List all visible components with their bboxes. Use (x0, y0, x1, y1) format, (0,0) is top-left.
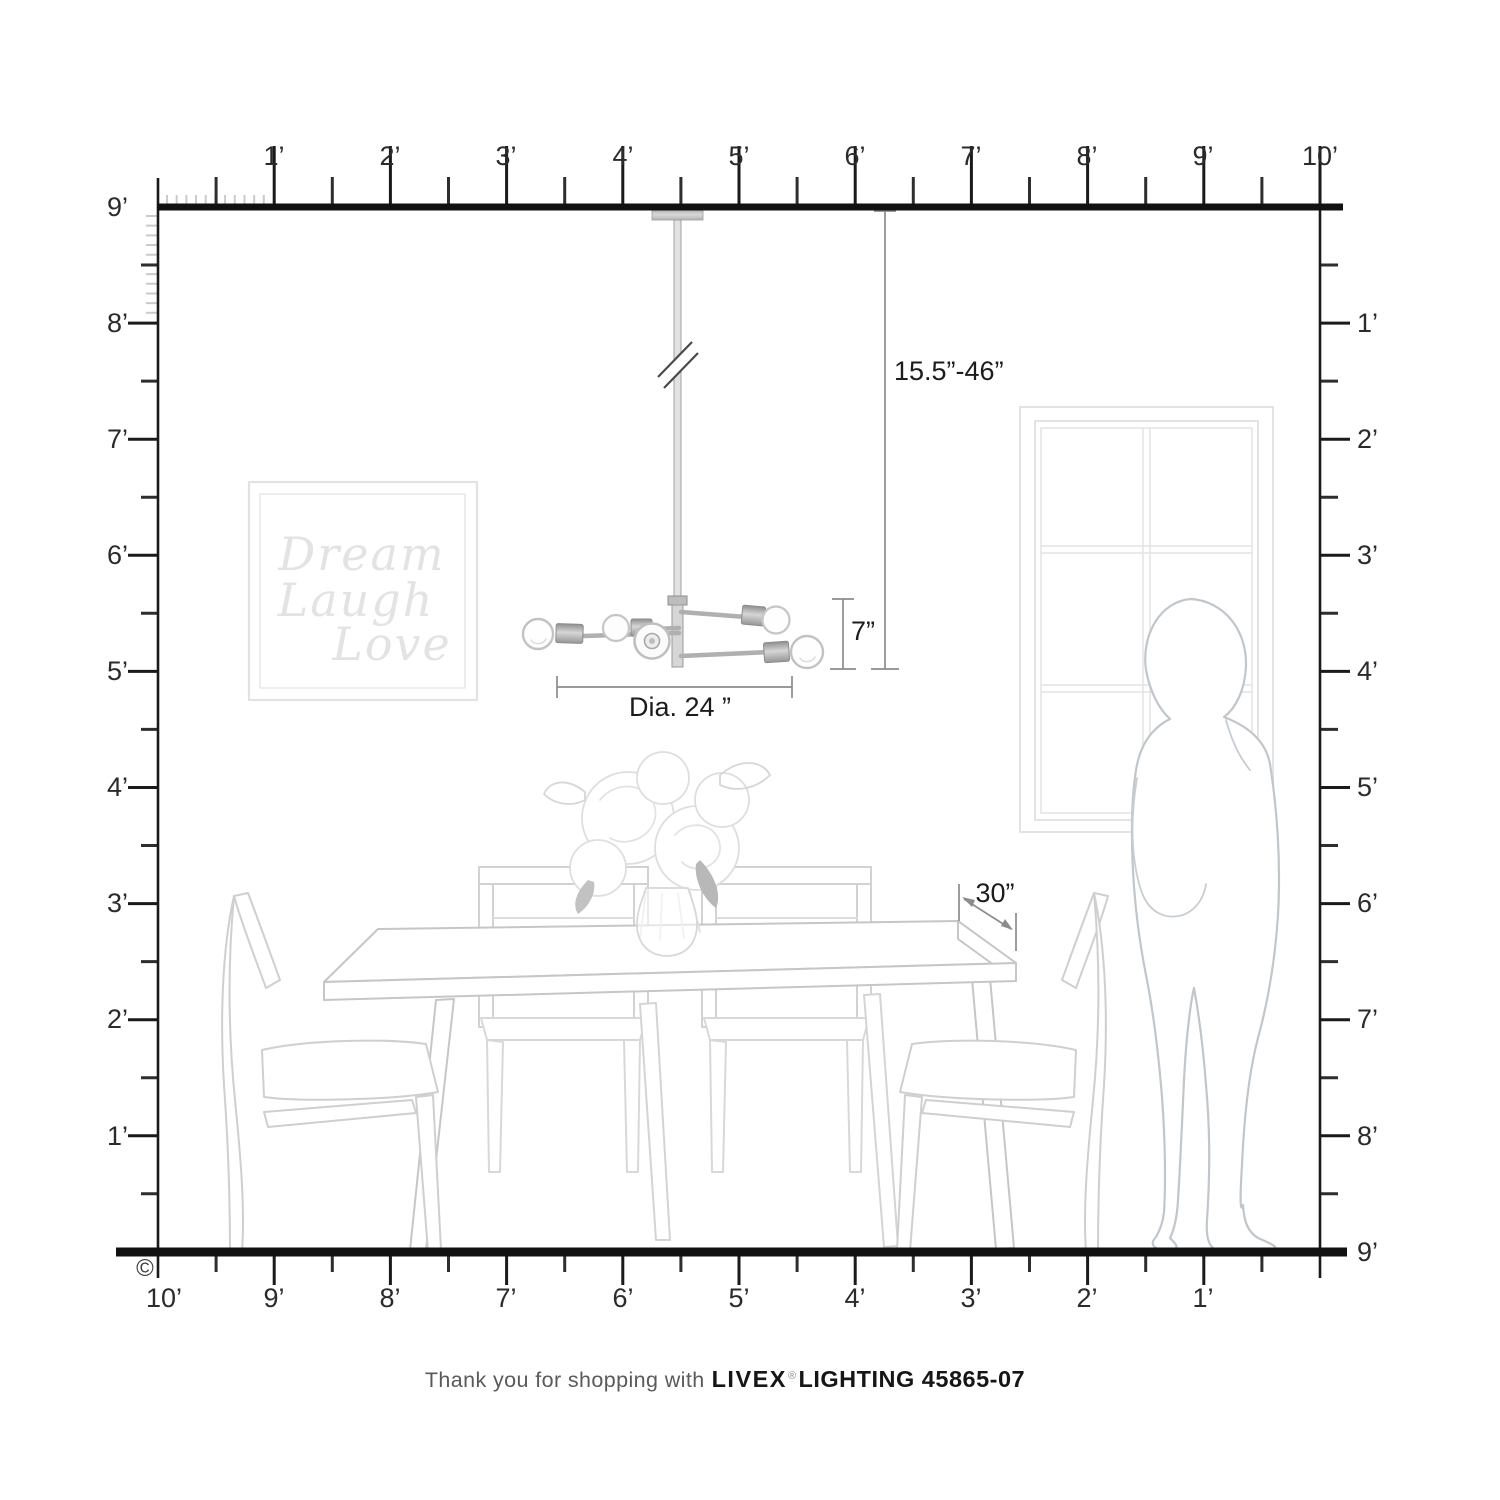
left-ruler-labels: 9’ 8’ 7’ 6’ 5’ 4’ 3’ 2’ 1’ (107, 192, 128, 1151)
top-tick-label: 4’ (612, 141, 633, 171)
top-tick-label: 5’ (728, 141, 749, 171)
left-tick-label: 5’ (107, 656, 128, 686)
back-chair-right (702, 867, 871, 1172)
bottom-tick-label: 7’ (495, 1283, 516, 1313)
bottom-ruler-labels: 10’ 9’ 8’ 7’ 6’ 5’ 4’ 3’ 2’ 1’ (146, 1283, 1214, 1313)
light-bulb (523, 619, 553, 649)
left-tick-label: 2’ (107, 1004, 128, 1034)
downrod (674, 220, 681, 598)
bottom-tick-label: 9’ (263, 1283, 284, 1313)
chair-seat (262, 1041, 438, 1100)
table-clearance-label: 30” (975, 878, 1014, 908)
bottom-tick-label: 4’ (844, 1283, 865, 1313)
bottom-tick-label: 6’ (612, 1283, 633, 1313)
wall-art-frame: Dream Laugh Love (249, 482, 477, 700)
right-tick-label: 5’ (1357, 772, 1378, 802)
product-number: LIGHTING 45865-07 (799, 1366, 1026, 1392)
light-bulb (763, 607, 790, 634)
right-tick-label: 9’ (1357, 1237, 1378, 1267)
right-tick-label: 6’ (1357, 888, 1378, 918)
pendant-light (523, 209, 823, 668)
registered-trademark-symbol: ® (788, 1370, 797, 1382)
top-tick-label: 7’ (960, 141, 981, 171)
copyright-symbol: © (136, 1255, 154, 1282)
bulb-socket (556, 624, 584, 644)
top-tick-label: 3’ (495, 141, 516, 171)
right-tick-label: 2’ (1357, 424, 1378, 454)
right-tick-label: 7’ (1357, 1004, 1378, 1034)
left-tick-label: 4’ (107, 772, 128, 802)
ceiling-canopy (652, 209, 703, 220)
top-tick-label: 9’ (1192, 141, 1213, 171)
chair-stretcher (264, 1100, 416, 1127)
fixture-height-label: 7” (851, 616, 875, 646)
person-silhouette (1132, 599, 1279, 1250)
right-tick-label: 4’ (1357, 656, 1378, 686)
chair-back-post (222, 896, 243, 1252)
left-tick-label: 9’ (107, 192, 128, 222)
bottom-tick-label: 2’ (1076, 1283, 1097, 1313)
arm-rod (681, 612, 746, 617)
top-tick-label: 6’ (844, 141, 865, 171)
bottom-tick-label: 8’ (379, 1283, 400, 1313)
chair-seat (900, 1041, 1076, 1100)
bulb-socket (763, 641, 789, 663)
brand-name: LIVEX (712, 1366, 787, 1392)
scale-diagram-page: Dream Laugh Love (0, 0, 1500, 1500)
hanging-height-dimension (871, 211, 899, 669)
left-tick-label: 3’ (107, 888, 128, 918)
chair-headrest (234, 893, 280, 988)
top-tick-label: 2’ (379, 141, 400, 171)
bottom-tick-label: 10’ (146, 1283, 182, 1313)
arm-rod (681, 652, 770, 656)
right-tick-label: 3’ (1357, 540, 1378, 570)
art-word-love: Love (331, 617, 451, 671)
bottom-tick-label: 5’ (728, 1283, 749, 1313)
back-chair-left (479, 867, 648, 1172)
diameter-label: Dia. 24 ” (629, 692, 731, 722)
top-tick-label: 1’ (263, 141, 284, 171)
chair-front-leg (897, 1095, 922, 1251)
light-bulb (791, 636, 823, 668)
left-tick-label: 8’ (107, 308, 128, 338)
top-tick-label: 10’ (1302, 141, 1338, 171)
right-tick-label: 8’ (1357, 1121, 1378, 1151)
footer-caption: Thank you for shopping withLIVEX®LIGHTIN… (0, 1366, 1475, 1393)
top-tick-label: 8’ (1076, 141, 1097, 171)
bottom-tick-label: 3’ (960, 1283, 981, 1313)
bottom-tick-label: 1’ (1192, 1283, 1213, 1313)
hub-collar (668, 596, 687, 605)
caption-prefix: Thank you for shopping with (425, 1368, 705, 1392)
top-ruler-labels: 1’ 2’ 3’ 4’ 5’ 6’ 7’ 8’ 9’ 10’ (263, 141, 1338, 171)
left-tick-label: 7’ (107, 424, 128, 454)
table-leg (640, 1003, 670, 1240)
light-bulb (603, 615, 629, 641)
dimension-diagram: Dream Laugh Love (0, 0, 1500, 1500)
table-leg (864, 994, 898, 1247)
background-scene: Dream Laugh Love (222, 407, 1279, 1252)
hanging-height-label: 15.5”-46” (894, 356, 1004, 386)
left-tick-label: 1’ (107, 1121, 128, 1151)
right-ruler-labels: 1’ 2’ 3’ 4’ 5’ 6’ 7’ 8’ 9’ (1357, 308, 1378, 1267)
right-tick-label: 1’ (1357, 308, 1378, 338)
left-tick-label: 6’ (107, 540, 128, 570)
